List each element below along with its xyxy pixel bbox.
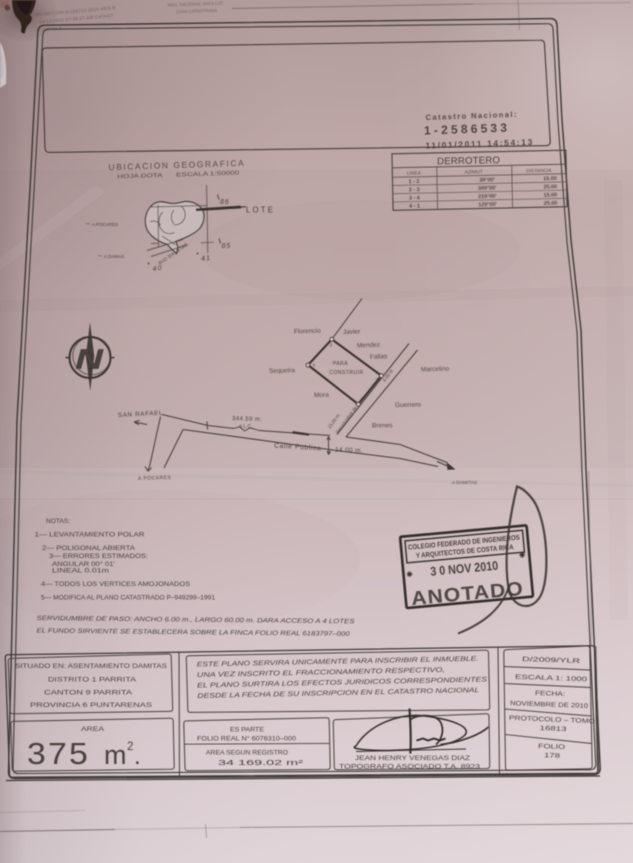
svg-text:2 - 3: 2 - 3 [409,187,420,193]
svg-text:Mora: Mora [314,392,329,399]
svg-text:SITUADO EN: ASENTAMIENTO DA: SITUADO EN: ASENTAMIENTO DAMITAS [15,663,168,670]
svg-text:2: 2 [127,741,133,753]
svg-text:N: N [75,344,103,375]
svg-text:A POCARES: A POCARES [138,475,172,482]
svg-text:AREA SEGUN REGISTRO: AREA SEGUN REGISTRO [206,750,288,757]
svg-text:FOLIO REAL N° 6076310–000: FOLIO REAL N° 6076310–000 [197,737,297,743]
svg-text:86: 86 [220,199,229,206]
svg-text:129°00': 129°00' [478,202,497,208]
svg-text:CANTON 9 PARRITA: CANTON 9 PARRITA [44,690,133,697]
svg-text:1— LEVANTAMIENTO POLAR: 1— LEVANTAMIENTO POLAR [35,532,146,539]
svg-text:4 - 1: 4 - 1 [409,203,420,209]
svg-text:JEAN HENRY VENEGAS DIAZ: JEAN HENRY VENEGAS DIAZ [355,755,470,762]
svg-text:Mendez: Mendez [357,342,380,350]
svg-text:LINEA: LINEA [407,171,422,177]
svg-text:a L.C.: a L.C. [239,424,253,430]
svg-text:5— MODIFICA AL PLANO CATASTRAD: 5— MODIFICA AL PLANO CATASTRADO P–949299… [41,595,216,602]
svg-text:39°00': 39°00' [479,177,495,183]
svg-text:A DAMAS: A DAMAS [104,254,124,259]
svg-text:A DAMITAS: A DAMITAS [452,480,477,486]
svg-text:375: 375 [27,736,90,771]
svg-text:4— TODOS LOS VERTICES AMO: 4— TODOS LOS VERTICES AMOJONADOS [41,581,190,588]
svg-text:FOLIO: FOLIO [538,743,565,751]
svg-text:15.00: 15.00 [544,192,558,198]
svg-text:DISTRITO 1 PARRITA: DISTRITO 1 PARRITA [48,677,137,684]
svg-text:Marcelino: Marcelino [421,366,450,374]
svg-text:FECHA:: FECHA: [535,690,566,698]
svg-text:AZIMUT: AZIMUT [465,169,483,175]
svg-text:Florencio: Florencio [294,328,321,336]
svg-text:Brenes: Brenes [372,422,393,429]
svg-text:CONSTRUIR: CONSTRUIR [329,370,363,376]
svg-text:16813: 16813 [539,725,567,733]
svg-text:.: . [134,743,141,770]
svg-text:PARA: PARA [333,361,348,367]
svg-text:LINEAL 0.01m: LINEAL 0.01m [52,568,109,575]
svg-text:178: 178 [544,752,561,760]
svg-text:Sequeira: Sequeira [269,367,296,375]
svg-text:DERROTERO: DERROTERO [437,155,500,167]
svg-text:85: 85 [222,243,231,250]
svg-text:15.00: 15.00 [543,176,557,182]
svg-text:344.59 m.: 344.59 m. [232,416,262,423]
svg-text:3— ERRORES ESTIMADOS:: 3— ERRORES ESTIMADOS: [49,553,148,560]
svg-text:25.00: 25.00 [544,201,558,207]
svg-text:34 169.02 m²: 34 169.02 m² [218,758,304,767]
svg-text:2— POLIGONAL ABIERTA: 2— POLIGONAL ABIERTA [42,545,136,552]
svg-text:PROVINCIA 6 PUNTARENAS: PROVINCIA 6 PUNTARENAS [30,702,153,709]
svg-text:A POCARES: A POCARES [92,222,118,227]
svg-text:ES PARTE: ES PARTE [230,727,265,734]
svg-text:LOTE: LOTE [246,206,275,215]
svg-text:Javier: Javier [343,328,361,336]
svg-text:Fallas: Fallas [370,353,388,361]
svg-text:3 - 4: 3 - 4 [409,195,420,201]
svg-text:41: 41 [201,255,212,263]
svg-text:309°00': 309°00' [478,185,497,191]
svg-text:m: m [104,740,127,770]
svg-text:219°00': 219°00' [478,194,497,200]
svg-text:25.00: 25.00 [543,184,557,190]
svg-text:TOPOGRAFO ASOCIADO T.A. 892: TOPOGRAFO ASOCIADO T.A. 8923 [339,764,481,771]
svg-text:DISTANCIA: DISTANCIA [526,168,552,175]
svg-text:NOTAS:: NOTAS: [46,518,70,525]
svg-text:1 - 2: 1 - 2 [409,179,420,185]
svg-text:AREA: AREA [81,726,105,733]
svg-text:14.00 m.: 14.00 m. [335,447,363,455]
svg-text:Guerrero: Guerrero [395,402,422,409]
